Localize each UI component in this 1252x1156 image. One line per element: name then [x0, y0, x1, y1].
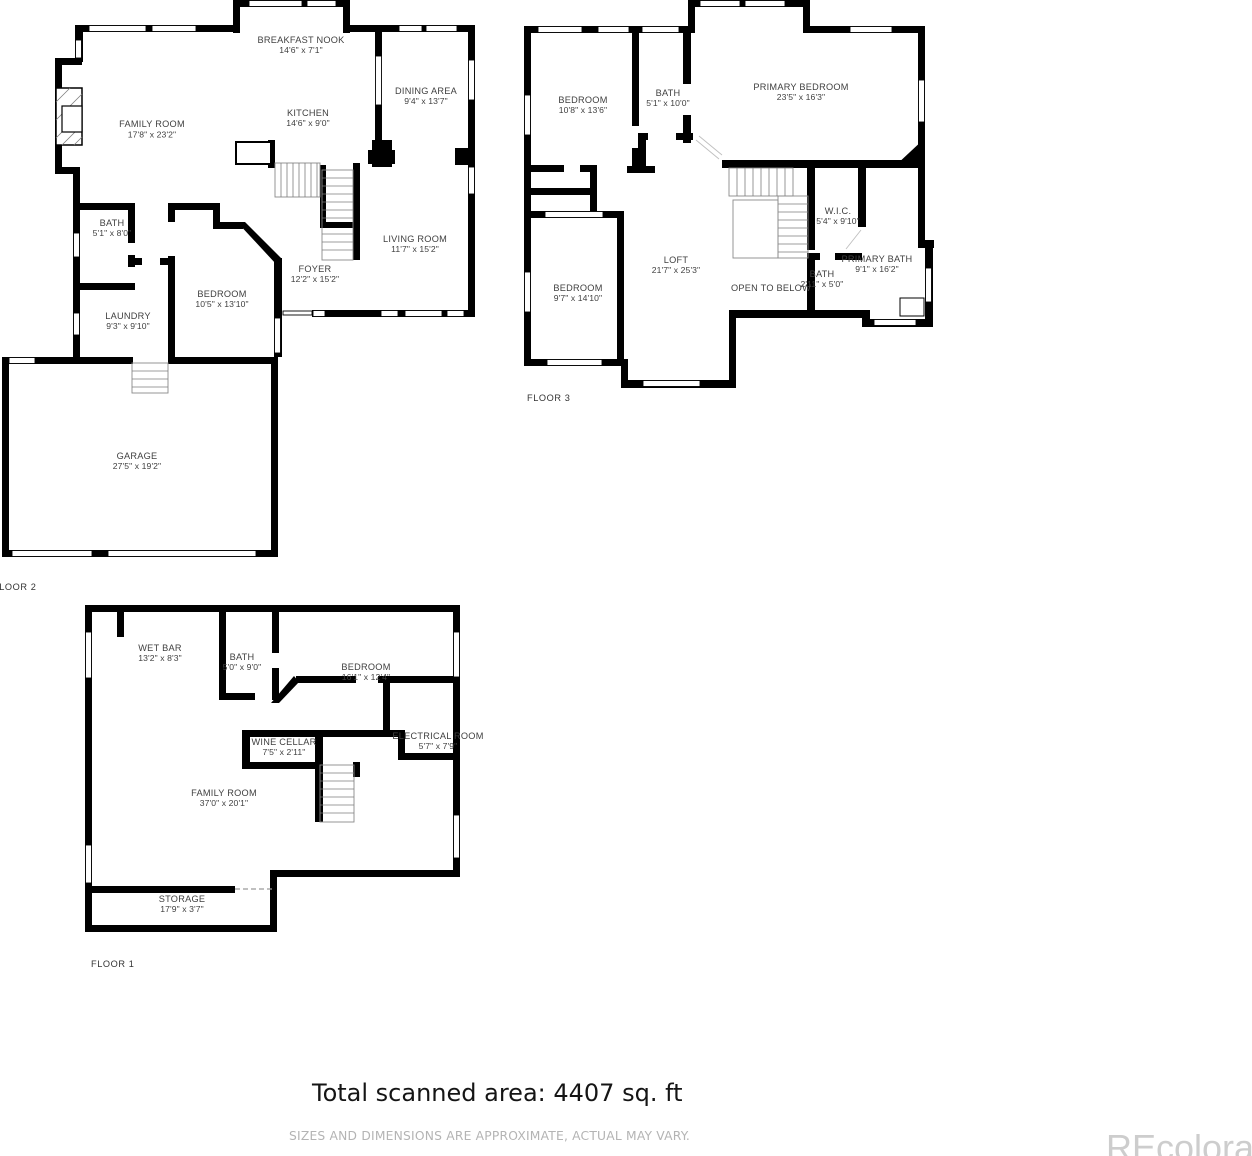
room-label: WINE CELLAR [251, 737, 316, 747]
room-label: LIVING ROOM [383, 234, 447, 244]
floor-label: FLOOR 3 [527, 393, 571, 403]
stairs [320, 765, 354, 822]
room-label: BATH [100, 218, 125, 228]
floor-label: FLOOR 2 [0, 582, 37, 592]
room-label: BEDROOM [197, 289, 246, 299]
room-dims: 9'3" x 9'10" [106, 321, 150, 331]
room-label: LOFT [664, 255, 689, 265]
room-dims: 17'8" x 23'2" [128, 130, 176, 140]
room-dims: 14'6" x 9'0" [286, 118, 330, 128]
fireplace [56, 88, 82, 145]
walls [2, 0, 475, 557]
room-dims: 5'4" x 9'10" [816, 216, 860, 226]
room-dims: 11'7" x 15'2" [391, 244, 439, 254]
room-label: BATH [810, 269, 835, 279]
floor-2-plan: FAMILY ROOM 17'8" x 23'2" BREAKFAST NOOK… [0, 0, 475, 592]
room-label: PRIMARY BEDROOM [753, 82, 848, 92]
room-label: BEDROOM [558, 95, 607, 105]
floorplan-drawing: FAMILY ROOM 17'8" x 23'2" BREAKFAST NOOK… [0, 0, 1252, 1156]
room-label: GARAGE [117, 451, 158, 461]
room-dims: 10'8" x 13'6" [559, 105, 607, 115]
room-dims: 13'2" x 8'3" [138, 653, 182, 663]
room-dims: 10'5" x 13'10" [195, 299, 248, 309]
room-label: DINING AREA [395, 86, 458, 96]
room-label: BREAKFAST NOOK [257, 35, 345, 45]
room-label: KITCHEN [287, 108, 329, 118]
room-label: PRIMARY BATH [842, 254, 913, 264]
room-label: FAMILY ROOM [119, 119, 185, 129]
room-dims: 9'1" x 16'2" [855, 264, 899, 274]
stairs [729, 168, 808, 258]
floor-1-plan: WET BAR 13'2" x 8'3" BATH 5'0" x 9'0" BE… [85, 605, 484, 969]
disclaimer-text: SIZES AND DIMENSIONS ARE APPROXIMATE, AC… [289, 1129, 690, 1143]
room-dims: 7'5" x 2'11" [263, 747, 306, 757]
room-label: BEDROOM [341, 662, 390, 672]
room-dims: 37'0" x 20'1" [200, 798, 248, 808]
kitchen-counter [236, 142, 271, 164]
room-label: FAMILY ROOM [191, 788, 257, 798]
room-label: BEDROOM [553, 283, 602, 293]
room-dims: 9'4" x 13'7" [404, 96, 448, 106]
room-dims: 27'5" x 19'2" [113, 461, 161, 471]
room-dims: 21'7" x 25'3" [652, 265, 700, 275]
floor-3-plan: BEDROOM 10'8" x 13'6" BATH 5'1" x 10'0" … [524, 0, 934, 403]
room-label: STORAGE [159, 894, 206, 904]
room-label: BATH [656, 88, 681, 98]
room-label: OPEN TO BELOW [731, 283, 811, 293]
floor-label: FLOOR 1 [91, 959, 135, 969]
room-label: FOYER [299, 264, 332, 274]
room-dims: 5'7" x 7'9" [419, 741, 458, 751]
room-dims: 5'1" x 8'0" [93, 228, 132, 238]
shower [900, 298, 924, 316]
room-label: BATH [230, 652, 255, 662]
room-dims: 23'5" x 16'3" [777, 92, 825, 102]
floorplan-sheet: FAMILY ROOM 17'8" x 23'2" BREAKFAST NOOK… [0, 0, 1252, 1156]
room-label: LAUNDRY [105, 311, 151, 321]
room-label: ELECTRICAL ROOM [392, 731, 483, 741]
room-dims: 9'7" x 14'10" [554, 293, 602, 303]
room-dims: 16'1" x 12'4" [342, 672, 390, 682]
opening-break-lines [696, 136, 861, 249]
room-dims: 14'6" x 7'1" [279, 45, 323, 55]
recolorado-watermark: REcolorado [1106, 1127, 1252, 1156]
room-dims: 5'1" x 10'0" [646, 98, 690, 108]
total-area-text: Total scanned area: 4407 sq. ft [312, 1079, 683, 1107]
room-dims: 17'9" x 3'7" [160, 904, 204, 914]
room-dims: 2'11" x 5'0" [801, 279, 844, 289]
room-dims: 12'2" x 15'2" [291, 274, 339, 284]
room-label: W.I.C. [825, 206, 852, 216]
room-dims: 5'0" x 9'0" [223, 662, 262, 672]
room-label: WET BAR [138, 643, 182, 653]
